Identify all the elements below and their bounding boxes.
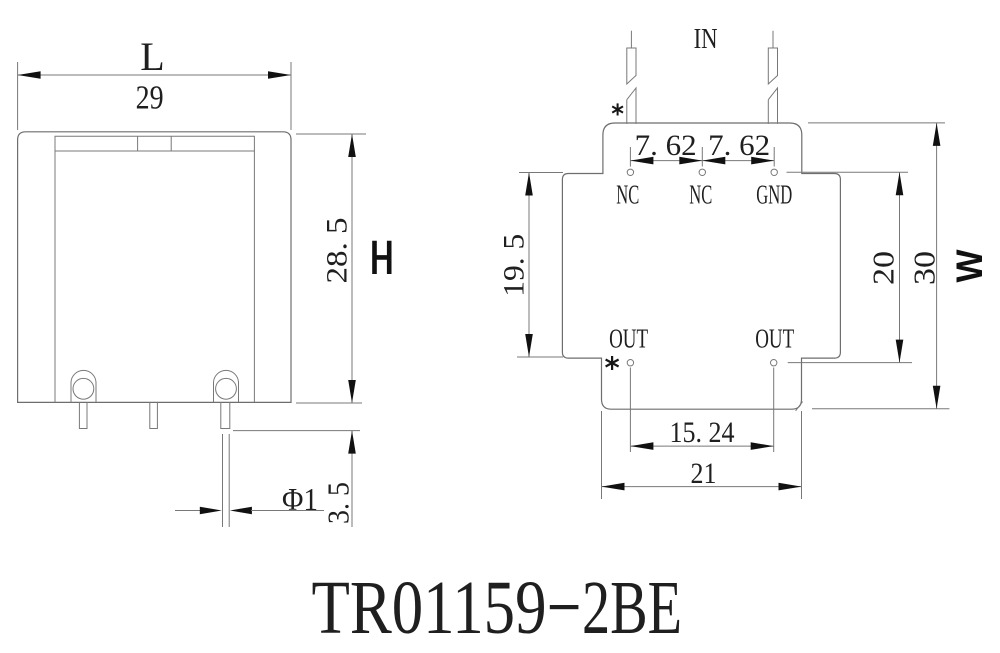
svg-text:OUT: OUT	[609, 324, 648, 354]
svg-text:21: 21	[691, 457, 717, 490]
svg-text:19. 5: 19. 5	[498, 234, 531, 297]
svg-text:W: W	[949, 249, 990, 282]
svg-text:20: 20	[866, 251, 901, 285]
svg-text:NC: NC	[616, 179, 639, 209]
svg-text:29: 29	[136, 80, 164, 117]
svg-text:2BE: 2BE	[582, 566, 682, 650]
svg-text:L: L	[140, 34, 164, 79]
svg-text:7. 62: 7. 62	[635, 129, 697, 162]
svg-text:7. 62: 7. 62	[708, 129, 770, 162]
svg-text:IN: IN	[694, 24, 718, 55]
svg-text:15. 24: 15. 24	[670, 416, 735, 449]
svg-text:NC: NC	[689, 179, 712, 209]
svg-text:28. 5: 28. 5	[321, 218, 354, 284]
svg-text:GND: GND	[756, 179, 792, 209]
svg-text:TR01159: TR01159	[312, 566, 547, 650]
svg-text:OUT: OUT	[755, 324, 794, 354]
svg-text:30: 30	[907, 251, 942, 285]
svg-text:3. 5: 3. 5	[320, 482, 355, 524]
svg-text:Φ1: Φ1	[282, 481, 318, 517]
